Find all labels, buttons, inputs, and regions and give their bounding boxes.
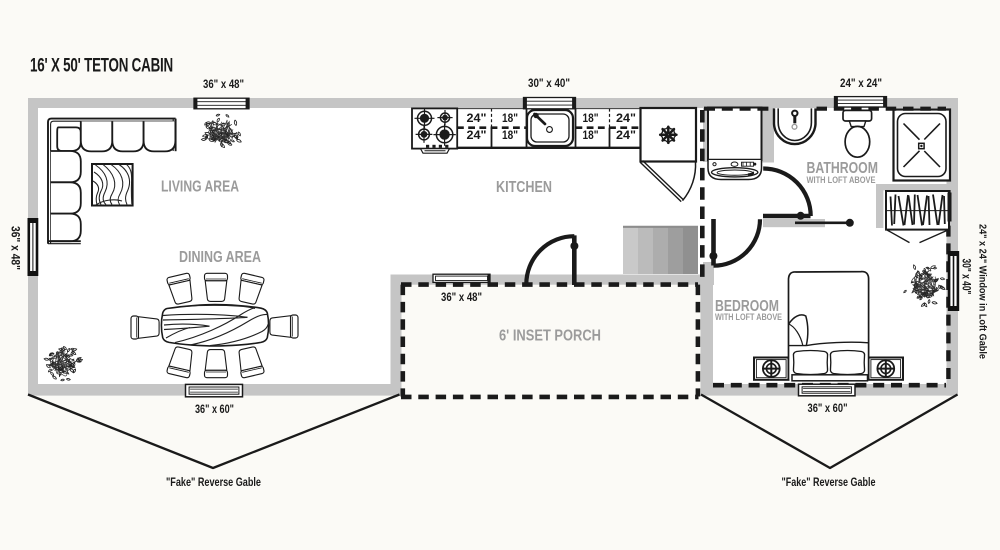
svg-text:24": 24" [616,113,636,125]
svg-text:24": 24" [467,113,487,125]
svg-text:LIVING AREA: LIVING AREA [161,179,239,196]
svg-text:18": 18" [583,130,599,142]
svg-text:24": 24" [616,130,636,142]
svg-text:WITH LOFT ABOVE: WITH LOFT ABOVE [807,175,876,186]
svg-text:"Fake" Reverse Gable: "Fake" Reverse Gable [166,477,261,489]
svg-text:36" x 48": 36" x 48" [203,79,244,91]
svg-text:36" x 48": 36" x 48" [441,292,482,304]
svg-text:6' INSET PORCH: 6' INSET PORCH [499,328,601,345]
svg-text:18": 18" [583,113,599,125]
svg-text:36" x 60": 36" x 60" [195,404,234,416]
svg-text:36" x 60": 36" x 60" [808,403,848,415]
svg-text:WITH LOFT ABOVE: WITH LOFT ABOVE [715,312,782,323]
svg-text:DINING AREA: DINING AREA [179,249,261,266]
svg-text:30" x 40": 30" x 40" [960,259,972,295]
svg-text:KITCHEN: KITCHEN [496,179,552,196]
svg-text:30" x 40": 30" x 40" [528,78,570,90]
svg-text:24" x 24": 24" x 24" [840,78,882,90]
svg-text:36" x 48": 36" x 48" [9,226,21,270]
svg-text:16' X 50' TETON CABIN: 16' X 50' TETON CABIN [30,56,173,77]
svg-text:24" x 24" Window in Loft Gable: 24" x 24" Window in Loft Gable [977,224,989,359]
svg-text:"Fake" Reverse Gable: "Fake" Reverse Gable [782,477,876,489]
svg-text:18": 18" [502,113,518,125]
svg-text:24": 24" [467,130,487,142]
svg-text:18": 18" [502,130,518,142]
